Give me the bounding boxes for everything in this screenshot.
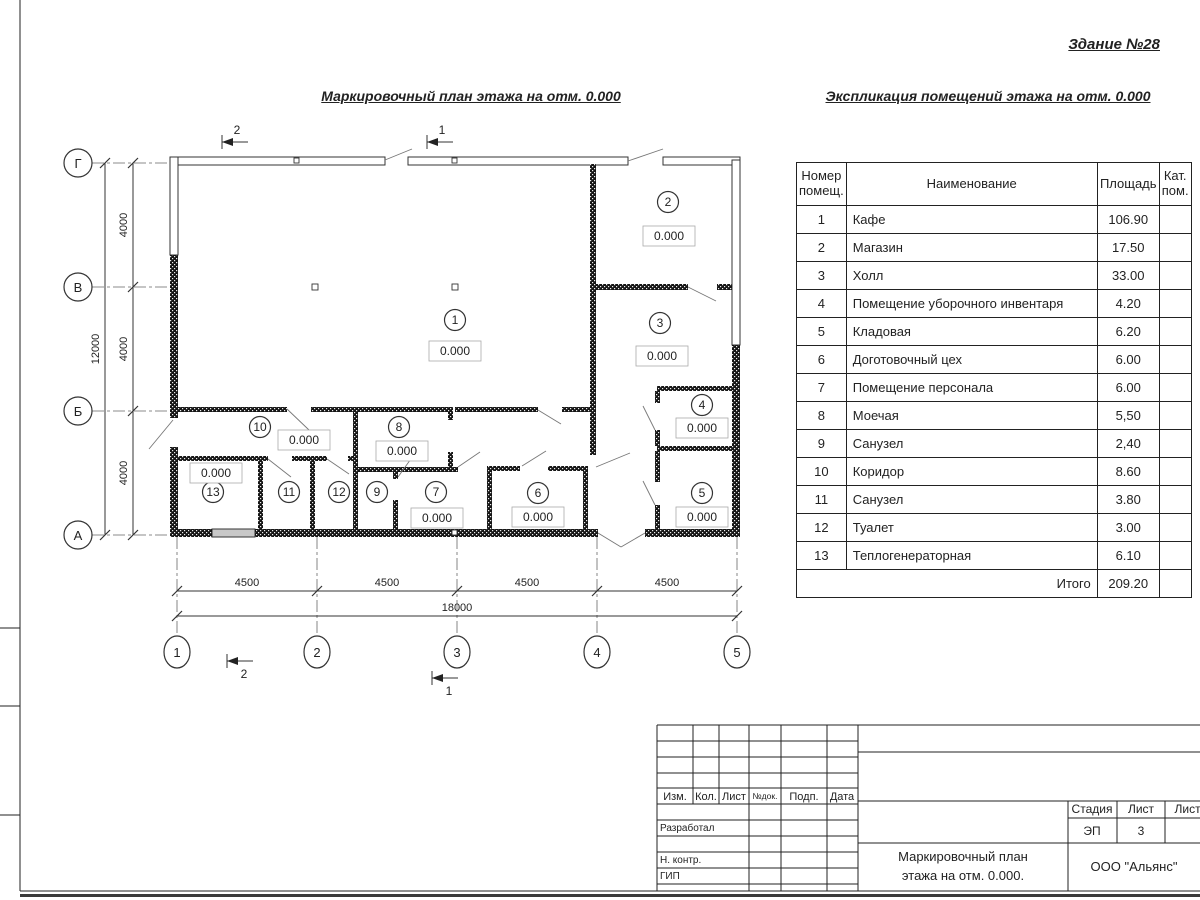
table-row: 6 Доготовочный цех 6.00 (797, 346, 1192, 374)
room-marker: 13 (203, 482, 224, 503)
room-number-cell: 6 (797, 346, 847, 374)
section-mark: 2 (227, 654, 253, 681)
room-area-cell: 2,40 (1097, 430, 1159, 458)
room-category-cell (1159, 234, 1191, 262)
room-name-cell: Кафе (846, 206, 1097, 234)
room-marker: 4 (692, 395, 713, 416)
room-name-cell: Санузел (846, 430, 1097, 458)
grid-bubble: Б (64, 397, 92, 425)
titleblock-col-header: Дата (830, 791, 855, 803)
table-row: 1 Кафе 106.90 (797, 206, 1192, 234)
room-area-cell: 106.90 (1097, 206, 1159, 234)
stage-value: ЭП (1083, 824, 1100, 838)
dim-label: 18000 (442, 602, 473, 614)
svg-text:7: 7 (433, 485, 440, 499)
svg-text:0.000: 0.000 (422, 511, 452, 525)
elevation-label: 0.000 (643, 226, 695, 246)
col-header-name: Наименование (846, 163, 1097, 206)
room-number-cell: 3 (797, 262, 847, 290)
svg-text:0.000: 0.000 (523, 510, 553, 524)
svg-text:8: 8 (396, 420, 403, 434)
total-area-cell: 209.20 (1097, 570, 1159, 598)
room-category-cell (1159, 486, 1191, 514)
drawing-sheet: 1 2 3 4 5 6 7 8 9 10 11 12 13 0.000 0.00… (0, 0, 1200, 900)
room-area-cell: 3.80 (1097, 486, 1159, 514)
room-category-cell (1159, 318, 1191, 346)
room-name-cell: Доготовочный цех (846, 346, 1097, 374)
room-number-cell: 7 (797, 374, 847, 402)
grid-bubble: 2 (304, 636, 330, 668)
elevation-label: 0.000 (376, 441, 428, 461)
room-category-cell (1159, 430, 1191, 458)
svg-text:0.000: 0.000 (654, 229, 684, 243)
plan-title: Маркировочный план этажа на отм. 0.000 (315, 88, 627, 104)
room-marker: 5 (692, 483, 713, 504)
room-area-cell: 6.00 (1097, 374, 1159, 402)
grid-bubble: 4 (584, 636, 610, 668)
svg-text:0.000: 0.000 (687, 510, 717, 524)
svg-text:2: 2 (313, 645, 320, 660)
svg-text:2: 2 (234, 123, 241, 137)
elevation-label: 0.000 (190, 463, 242, 483)
room-number-cell: 10 (797, 458, 847, 486)
table-row: 11 Санузел 3.80 (797, 486, 1192, 514)
elevation-label: 0.000 (636, 346, 688, 366)
svg-text:10: 10 (253, 420, 267, 434)
room-name-cell: Моечая (846, 402, 1097, 430)
room-category-cell (1159, 402, 1191, 430)
titleblock-col-header: Изм. (663, 791, 687, 803)
room-name-cell: Теплогенераторная (846, 542, 1097, 570)
room-name-cell: Кладовая (846, 318, 1097, 346)
svg-text:1: 1 (173, 645, 180, 660)
svg-text:0.000: 0.000 (647, 349, 677, 363)
elevation-label: 0.000 (676, 418, 728, 438)
col-header-number: Номер помещ. (797, 163, 847, 206)
room-marker: 6 (528, 483, 549, 504)
sheet-bottom-edge (20, 894, 1200, 897)
svg-text:Г: Г (74, 156, 81, 171)
room-name-cell: Помещение персонала (846, 374, 1097, 402)
room-name-cell: Холл (846, 262, 1097, 290)
room-number-cell: 11 (797, 486, 847, 514)
room-schedule-table: Номер помещ. Наименование Площадь Кат. п… (796, 162, 1192, 598)
room-marker: 11 (279, 482, 300, 503)
col-header-category: Кат. пом. (1159, 163, 1191, 206)
table-row: 8 Моечая 5,50 (797, 402, 1192, 430)
svg-text:5: 5 (733, 645, 740, 660)
grid-bubble: 3 (444, 636, 470, 668)
room-name-cell: Санузел (846, 486, 1097, 514)
table-row: 13 Теплогенераторная 6.10 (797, 542, 1192, 570)
dim-label: 4500 (655, 577, 679, 589)
elevation-label: 0.000 (429, 341, 481, 361)
svg-text:0.000: 0.000 (687, 421, 717, 435)
svg-text:3: 3 (453, 645, 460, 660)
room-marker: 7 (426, 482, 447, 503)
room-area-cell: 6.00 (1097, 346, 1159, 374)
room-category-cell (1159, 542, 1191, 570)
svg-text:А: А (74, 528, 83, 543)
table-row: 2 Магазин 17.50 (797, 234, 1192, 262)
titleblock-role: ГИП (660, 871, 680, 882)
svg-text:2: 2 (241, 667, 248, 681)
room-category-cell (1159, 206, 1191, 234)
section-mark: 2 (222, 123, 248, 149)
dim-label: 4000 (118, 337, 130, 361)
room-marker: 12 (329, 482, 350, 503)
section-mark: 1 (427, 123, 453, 149)
room-number-cell: 1 (797, 206, 847, 234)
floor-plan: 1 2 3 4 5 6 7 8 9 10 11 12 13 0.000 0.00… (64, 123, 750, 698)
table-row: 5 Кладовая 6.20 (797, 318, 1192, 346)
titleblock-role: Разработал (660, 822, 715, 834)
svg-text:4: 4 (593, 645, 600, 660)
dim-label: 4000 (118, 461, 130, 485)
room-number-cell: 2 (797, 234, 847, 262)
exterior-walls (170, 255, 740, 537)
title-block: Изм. Кол. Лист №док. Подп. Дата Разработ… (657, 725, 1200, 891)
grid-bubble: Г (64, 149, 92, 177)
company-name: ООО "Альянс" (1091, 859, 1178, 874)
sheet-label: Лист (1128, 802, 1155, 816)
table-row: 9 Санузел 2,40 (797, 430, 1192, 458)
room-marker: 2 (658, 192, 679, 213)
svg-text:0.000: 0.000 (201, 466, 231, 480)
total-category-cell (1159, 570, 1191, 598)
total-label-cell: Итого (797, 570, 1098, 598)
svg-text:4: 4 (699, 398, 706, 412)
svg-text:Б: Б (74, 404, 83, 419)
window (212, 529, 255, 537)
elevation-labels: 0.000 0.000 0.000 0.000 0.000 0.000 0.00… (190, 226, 728, 528)
elevation-label: 0.000 (278, 430, 330, 450)
col-header-area: Площадь (1097, 163, 1159, 206)
room-marker: 8 (389, 417, 410, 438)
table-row: 3 Холл 33.00 (797, 262, 1192, 290)
room-name-cell: Магазин (846, 234, 1097, 262)
elevation-label: 0.000 (512, 507, 564, 527)
svg-text:0.000: 0.000 (440, 344, 470, 358)
room-number-cell: 13 (797, 542, 847, 570)
dim-label: 4500 (515, 577, 539, 589)
table-row: 10 Коридор 8.60 (797, 458, 1192, 486)
sheets-label: Листов (1175, 802, 1200, 816)
room-area-cell: 17.50 (1097, 234, 1159, 262)
room-area-cell: 6.10 (1097, 542, 1159, 570)
svg-text:0.000: 0.000 (289, 433, 319, 447)
svg-text:1: 1 (446, 684, 453, 698)
room-category-cell (1159, 290, 1191, 318)
room-number-cell: 8 (797, 402, 847, 430)
room-category-cell (1159, 514, 1191, 542)
grid-bubble: В (64, 273, 92, 301)
svg-text:9: 9 (374, 485, 381, 499)
titleblock-col-header: №док. (753, 791, 778, 801)
svg-text:1: 1 (452, 313, 459, 327)
svg-text:3: 3 (657, 316, 664, 330)
room-category-cell (1159, 262, 1191, 290)
titleblock-col-header: Кол. (695, 791, 717, 803)
room-number-cell: 4 (797, 290, 847, 318)
table-header-row: Номер помещ. Наименование Площадь Кат. п… (797, 163, 1192, 206)
room-name-cell: Помещение уборочного инвентаря (846, 290, 1097, 318)
svg-text:13: 13 (206, 485, 220, 499)
titleblock-role: Н. контр. (660, 855, 701, 866)
schedule-title: Экспликация помещений этажа на отм. 0.00… (820, 88, 1156, 104)
room-area-cell: 4.20 (1097, 290, 1159, 318)
room-category-cell (1159, 374, 1191, 402)
stage-label: Стадия (1072, 802, 1113, 816)
dim-label: 4500 (375, 577, 399, 589)
elevation-label: 0.000 (411, 508, 463, 528)
svg-text:6: 6 (535, 486, 542, 500)
room-category-cell (1159, 458, 1191, 486)
room-area-cell: 5,50 (1097, 402, 1159, 430)
svg-text:1: 1 (439, 123, 446, 137)
table-row: 12 Туалет 3.00 (797, 514, 1192, 542)
titleblock-col-header: Лист (722, 791, 746, 803)
building-title: Здание №28 (1068, 36, 1160, 53)
titleblock-col-header: Подп. (789, 791, 818, 803)
doc-title-line2: этажа на отм. 0.000. (902, 868, 1024, 883)
room-number-cell: 12 (797, 514, 847, 542)
room-marker: 1 (445, 310, 466, 331)
room-number-cell: 5 (797, 318, 847, 346)
grid-bubble: А (64, 521, 92, 549)
room-name-cell: Туалет (846, 514, 1097, 542)
room-name-cell: Коридор (846, 458, 1097, 486)
svg-text:12: 12 (332, 485, 346, 499)
grid-bubble: 5 (724, 636, 750, 668)
room-area-cell: 8.60 (1097, 458, 1159, 486)
dim-label: 12000 (90, 334, 102, 365)
room-number-cell: 9 (797, 430, 847, 458)
svg-text:11: 11 (283, 485, 296, 499)
room-area-cell: 6.20 (1097, 318, 1159, 346)
room-category-cell (1159, 346, 1191, 374)
room-marker: 3 (650, 313, 671, 334)
dim-label: 4500 (235, 577, 259, 589)
svg-text:5: 5 (699, 486, 706, 500)
grid-bubble: 1 (164, 636, 190, 668)
doc-title-line1: Маркировочный план (898, 849, 1028, 864)
room-marker: 9 (367, 482, 388, 503)
svg-text:2: 2 (665, 195, 672, 209)
dim-label: 4000 (118, 213, 130, 237)
svg-text:0.000: 0.000 (387, 444, 417, 458)
table-row: 4 Помещение уборочного инвентаря 4.20 (797, 290, 1192, 318)
room-marker: 10 (250, 417, 271, 438)
sheet-value: 3 (1138, 824, 1145, 838)
table-row: 7 Помещение персонала 6.00 (797, 374, 1192, 402)
section-mark: 1 (432, 671, 458, 698)
table-total-row: Итого 209.20 (797, 570, 1192, 598)
room-area-cell: 33.00 (1097, 262, 1159, 290)
svg-text:В: В (74, 280, 83, 295)
room-area-cell: 3.00 (1097, 514, 1159, 542)
elevation-label: 0.000 (676, 507, 728, 527)
